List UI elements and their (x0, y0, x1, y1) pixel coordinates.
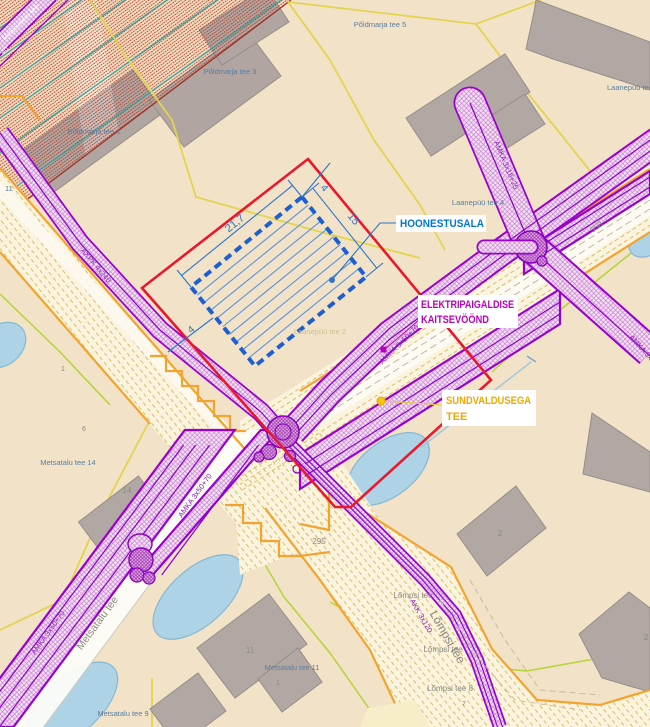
svg-text:1: 1 (61, 366, 65, 373)
svg-text:ELEKTRIPAIGALDISE: ELEKTRIPAIGALDISE (421, 299, 514, 311)
svg-text:11: 11 (246, 646, 255, 655)
svg-text:1: 1 (276, 680, 280, 687)
svg-text:KAITSEVÖÖND: KAITSEVÖÖND (421, 313, 489, 326)
svg-text:14: 14 (123, 486, 132, 495)
svg-text:6: 6 (82, 426, 86, 433)
svg-text:2: 2 (498, 529, 503, 538)
svg-text:Metsatalu tee 14: Metsatalu tee 14 (40, 458, 95, 467)
svg-text:Laanepüü tee 2: Laanepüü tee 2 (294, 327, 346, 336)
svg-text:Põldmarja tee 5: Põldmarja tee 5 (354, 20, 407, 29)
svg-text:2: 2 (644, 633, 649, 642)
svg-text:Lõmpsi tee 8: Lõmpsi tee 8 (427, 684, 473, 693)
svg-text:Metsatalu tee 9: Metsatalu tee 9 (97, 709, 148, 718)
svg-text:Põldmarja tee 1: Põldmarja tee 1 (68, 127, 121, 136)
svg-text:HOONESTUSALA: HOONESTUSALA (400, 218, 484, 230)
svg-text:Laanepüü tee: Laanepüü tee (607, 83, 650, 92)
svg-text:Põldmarja tee 3: Põldmarja tee 3 (204, 67, 257, 76)
svg-text:TEE: TEE (446, 411, 467, 423)
svg-text:Laanepüü tee 4: Laanepüü tee 4 (452, 198, 504, 207)
svg-text:7: 7 (462, 701, 466, 708)
svg-text:SUNDVALDUSEGA: SUNDVALDUSEGA (446, 395, 531, 407)
svg-text:11: 11 (5, 184, 13, 193)
svg-text:Metsatalu tee 11: Metsatalu tee 11 (265, 663, 320, 672)
svg-text:295: 295 (312, 537, 326, 546)
